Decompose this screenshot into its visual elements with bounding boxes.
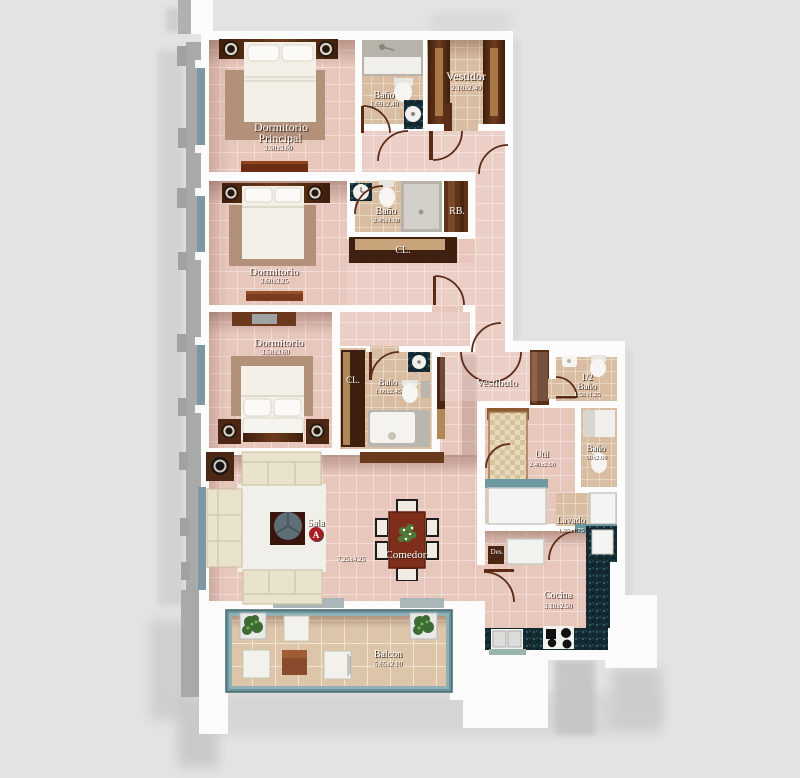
- svg-text:Util: Util: [535, 449, 550, 459]
- svg-text:Vestidor: Vestidor: [446, 69, 486, 83]
- svg-text:Lavado: Lavado: [557, 516, 586, 526]
- svg-text:2.45x1.50: 2.45x1.50: [373, 217, 399, 224]
- svg-text:Principal: Principal: [258, 131, 302, 145]
- svg-text:1.69x2.40: 1.69x2.40: [370, 100, 399, 108]
- svg-text:7.25x4.25: 7.25x4.25: [337, 555, 366, 563]
- svg-text:1.75x1.75: 1.75x1.75: [558, 527, 584, 534]
- svg-text:CL.: CL.: [346, 375, 360, 385]
- svg-text:3.18x2.50: 3.18x2.50: [544, 602, 573, 610]
- svg-text:2.40x2.00: 2.40x2.00: [529, 461, 555, 468]
- svg-text:Baño: Baño: [379, 377, 398, 387]
- svg-text:90x2.00: 90x2.00: [585, 454, 606, 461]
- svg-text:5.65x2.10: 5.65x2.10: [374, 660, 403, 668]
- svg-text:Des.: Des.: [491, 548, 504, 556]
- svg-text:Baño: Baño: [375, 206, 396, 217]
- svg-text:Cocina: Cocina: [544, 590, 573, 601]
- svg-text:2.10x2.40: 2.10x2.40: [451, 83, 481, 92]
- svg-text:A: A: [313, 530, 320, 540]
- svg-text:3.90x3.60: 3.90x3.60: [264, 144, 293, 152]
- svg-text:1.60x2.45: 1.60x2.45: [375, 388, 401, 395]
- svg-text:1.58x1.25: 1.58x1.25: [574, 391, 600, 398]
- svg-text:Baño: Baño: [587, 443, 606, 453]
- svg-text:Balcon: Balcon: [374, 649, 402, 660]
- svg-text:RB.: RB.: [449, 206, 465, 217]
- svg-text:3.60x3.25: 3.60x3.25: [260, 277, 289, 285]
- svg-text:3.58x3.60: 3.58x3.60: [261, 348, 290, 356]
- svg-text:CL.: CL.: [395, 245, 410, 256]
- svg-text:Comedor: Comedor: [386, 549, 427, 561]
- svg-text:Baño: Baño: [578, 381, 597, 391]
- svg-text:Vestibulo: Vestibulo: [476, 377, 518, 389]
